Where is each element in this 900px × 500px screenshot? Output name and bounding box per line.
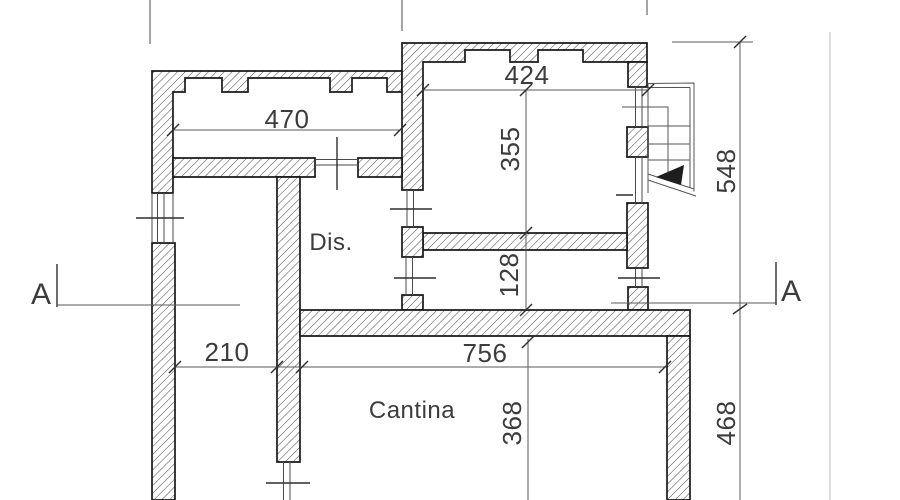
room-label-dis: Dis. <box>309 229 352 256</box>
dimension-label-368: 368 <box>497 401 527 446</box>
dimension-label-468: 468 <box>711 401 741 446</box>
floor-plan-canvas: A A 470 424 355 128 210 756 368 548 468 … <box>0 0 900 500</box>
wall-left-lower <box>152 243 175 500</box>
wall-right-block-4 <box>628 287 648 310</box>
wall-355-bottom <box>423 233 627 250</box>
wall-470-bottom-right <box>358 158 402 177</box>
wall-strip-block-1 <box>402 227 423 257</box>
wall-right-block-2 <box>627 127 648 157</box>
dimension-label-424: 424 <box>505 60 550 90</box>
dimension-label-548: 548 <box>711 149 741 194</box>
wall-right-block-1 <box>628 62 647 87</box>
dimension-label-128: 128 <box>494 253 524 298</box>
wall-470-bottom-left <box>173 158 315 177</box>
dimension-label-756: 756 <box>463 338 508 368</box>
room-label-cantina: Cantina <box>369 397 455 424</box>
dimension-label-210: 210 <box>205 337 250 367</box>
wall-cantina-top <box>300 310 690 336</box>
dimension-label-355: 355 <box>495 127 525 172</box>
wall-middle-vertical <box>277 177 300 462</box>
section-label-right: A <box>781 275 801 308</box>
dimension-label-470: 470 <box>265 104 310 134</box>
wall-right-block-3 <box>627 203 648 268</box>
wall-strip-block-2 <box>402 295 423 310</box>
floor-plan-page: A A 470 424 355 128 210 756 368 548 468 … <box>0 0 900 500</box>
section-label-left: A <box>31 278 51 311</box>
